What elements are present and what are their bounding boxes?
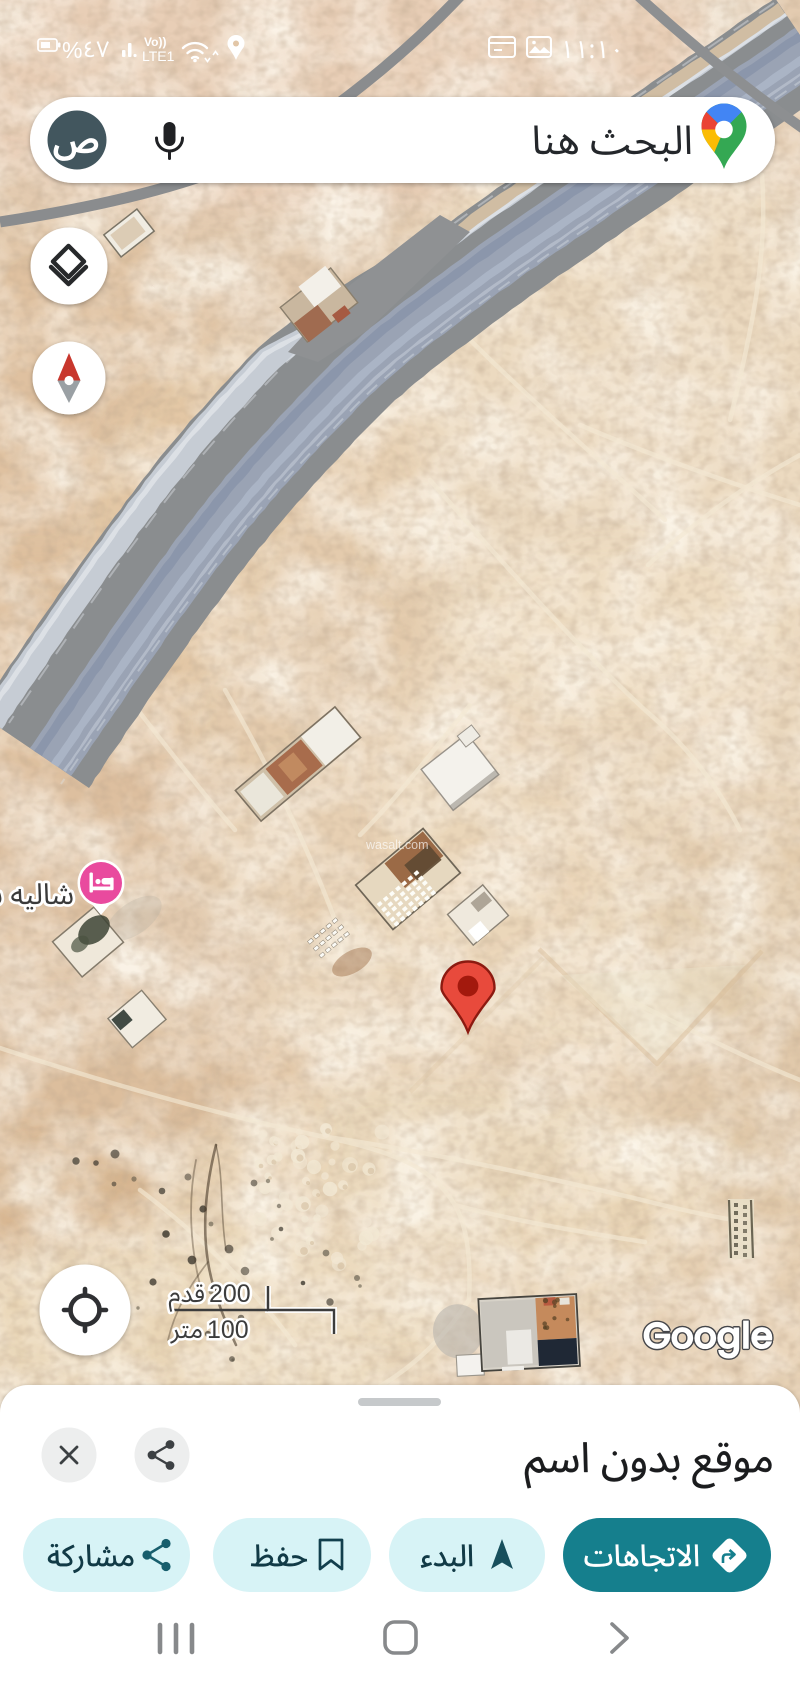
svg-text:LTE1: LTE1 [142, 48, 175, 64]
svg-text:%: % [62, 37, 82, 63]
svg-text:100: 100 [207, 1316, 249, 1344]
svg-text:200: 200 [209, 1280, 251, 1308]
svg-text:wasalt.com: wasalt.com [365, 838, 429, 852]
svg-text:Vo)): Vo)) [144, 35, 166, 49]
